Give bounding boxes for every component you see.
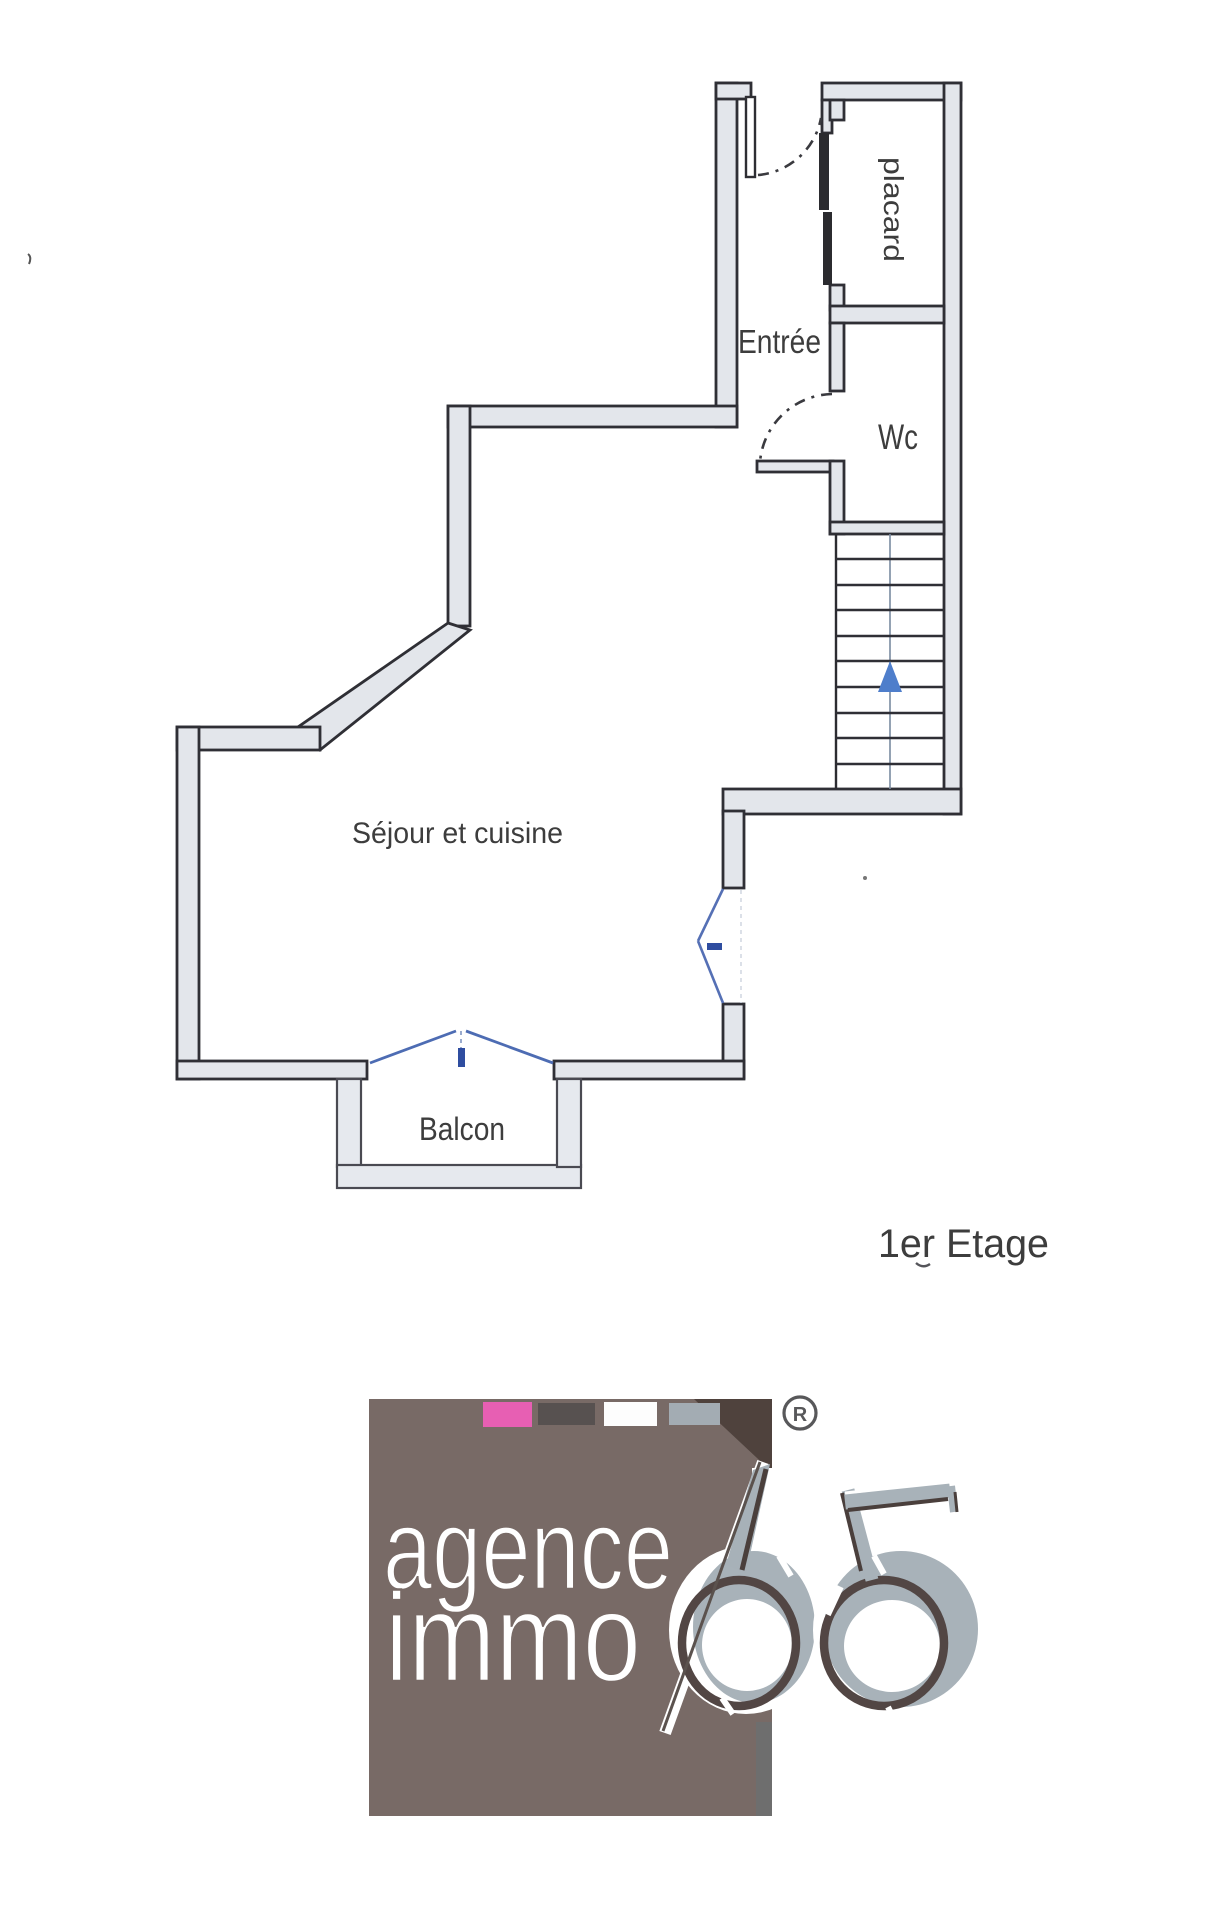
- svg-text:1er Etage: 1er Etage: [878, 1222, 1049, 1266]
- svg-text:placard: placard: [878, 157, 909, 262]
- svg-text:R: R: [793, 1404, 808, 1426]
- svg-text:Balcon: Balcon: [419, 1111, 505, 1147]
- svg-text:immo: immo: [385, 1567, 641, 1708]
- svg-text:Wc: Wc: [878, 418, 918, 457]
- svg-text:Entrée: Entrée: [738, 323, 821, 360]
- svg-text:Séjour et cuisine: Séjour et cuisine: [352, 817, 563, 850]
